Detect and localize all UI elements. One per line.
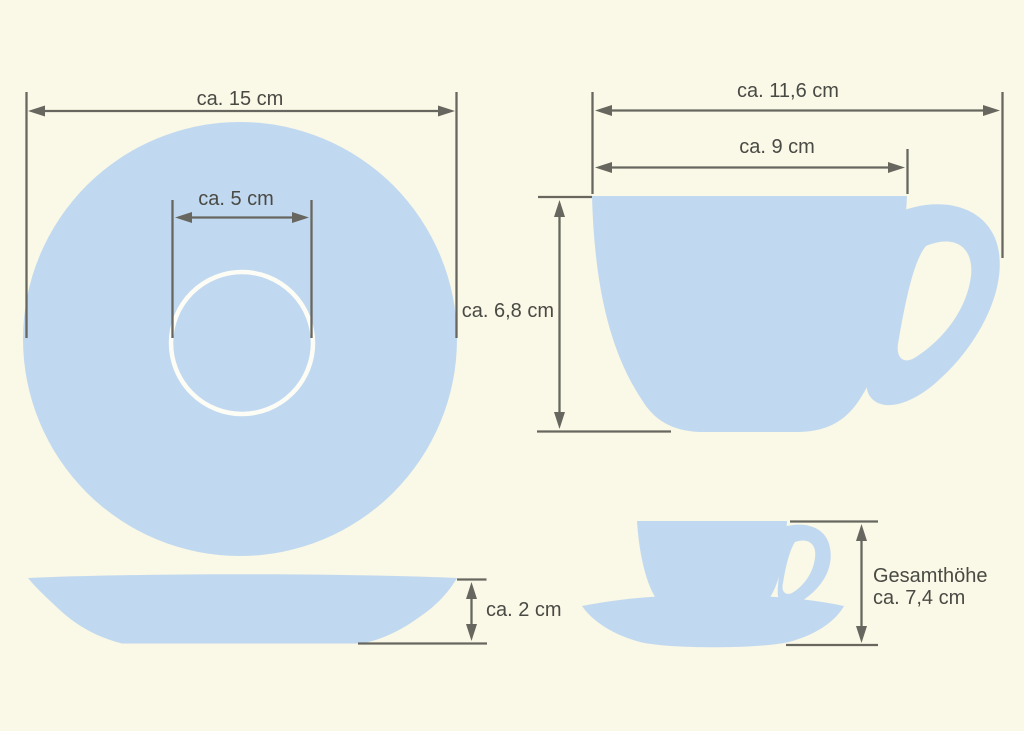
arrowhead-up-icon [856, 524, 867, 541]
cup-with-saucer-figure: Gesamthöhe ca. 7,4 cm [582, 521, 988, 647]
saucer-top-view-figure: ca. 15 cm ca. 5 cm [23, 88, 457, 556]
arrowhead-up-icon [466, 582, 477, 599]
cup-rim-diameter-label: ca. 9 cm [739, 136, 815, 158]
saucer-well-label: ca. 5 cm [198, 188, 274, 210]
arrowhead-down-icon [466, 624, 477, 641]
saucer-diameter-label: ca. 15 cm [197, 88, 284, 110]
cup-side-view-figure: ca. 11,6 cm ca. 9 cm ca. 6,8 cm [462, 80, 1003, 432]
arrowhead-right-icon [438, 106, 455, 117]
total-height-label: Gesamthöhe [873, 565, 988, 587]
arrowhead-down-icon [856, 626, 867, 643]
arrowhead-left-icon [28, 106, 45, 117]
arrowhead-left-icon [595, 162, 612, 173]
total-height-value: ca. 7,4 cm [873, 587, 965, 609]
cup-height-label: ca. 6,8 cm [462, 300, 554, 322]
saucer-profile [28, 574, 457, 643]
arrowhead-down-icon [554, 412, 565, 429]
arrowhead-right-icon [888, 162, 905, 173]
arrowhead-left-icon [595, 105, 612, 116]
small-cup-body [637, 521, 787, 609]
arrowhead-right-icon [983, 105, 1000, 116]
cup-rim-diameter-dimension: ca. 9 cm [595, 136, 908, 194]
diagram-svg: ca. 15 cm ca. 5 cm [0, 0, 1024, 731]
dimension-diagram: ca. 15 cm ca. 5 cm [0, 0, 1024, 731]
saucer-side-view-figure: ca. 2 cm [28, 574, 562, 643]
arrowhead-up-icon [554, 200, 565, 217]
saucer-height-label: ca. 2 cm [486, 599, 562, 621]
cup-body [592, 196, 907, 432]
cup-overall-width-label: ca. 11,6 cm [737, 80, 839, 102]
